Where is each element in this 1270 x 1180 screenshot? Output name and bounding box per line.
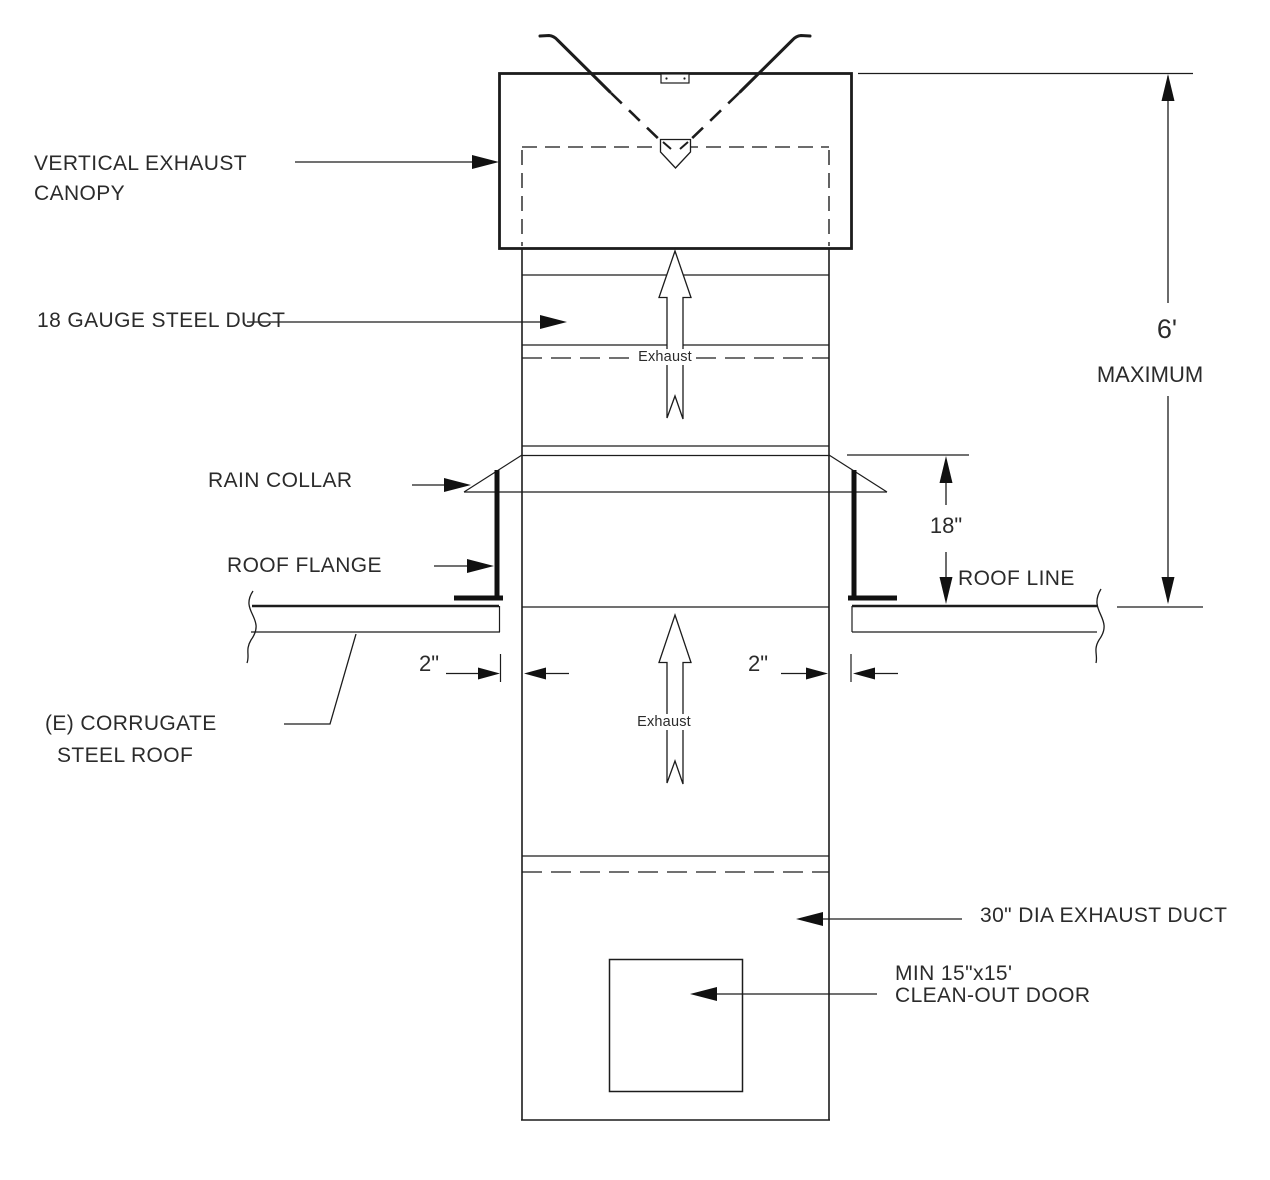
label-roof-line: ROOF LINE <box>958 567 1075 590</box>
exhaust-flow-arrow-lower <box>659 615 691 784</box>
flow-text-upper: Exhaust <box>635 349 695 365</box>
dimension-max-height <box>858 74 1203 608</box>
leader-canopy <box>295 155 499 169</box>
roof-break-left <box>247 591 256 663</box>
cleanout-door-outline <box>610 960 743 1092</box>
dim-text-clearance-left: 2" <box>419 651 439 677</box>
dim-text-max-height: 6' <box>1157 314 1177 345</box>
roof-left <box>247 591 500 663</box>
exhaust-flow-arrow-upper <box>659 251 691 419</box>
label-steel-duct: 18 GAUGE STEEL DUCT <box>37 309 285 332</box>
dim-text-clearance-right: 2" <box>748 651 768 677</box>
label-roof-flange: ROOF FLANGE <box>227 554 382 577</box>
dimension-clearance-left <box>446 654 569 682</box>
label-corrugate-line1: (E) CORRUGATE <box>45 712 217 735</box>
label-exhaust-duct: 30" DIA EXHAUST DUCT <box>980 904 1227 927</box>
leader-corrugate-roof <box>284 634 356 724</box>
label-cleanout-line1: MIN 15"x15' <box>895 962 1012 985</box>
canopy-mount-plate <box>661 74 689 83</box>
leader-exhaust-duct <box>796 912 962 926</box>
dim-text-maximum: MAXIMUM <box>1097 362 1203 388</box>
dim-text-collar-height: 18" <box>930 513 962 539</box>
flow-text-lower: Exhaust <box>634 714 694 730</box>
label-canopy-line1: VERTICAL EXHAUST <box>34 152 247 175</box>
leader-roof-flange <box>434 559 494 573</box>
roof-flange-right <box>848 470 897 598</box>
rain-collar-outline <box>464 455 887 492</box>
roof-break-right <box>1096 589 1104 663</box>
leader-steel-duct <box>247 315 567 329</box>
label-rain-collar: RAIN COLLAR <box>208 469 352 492</box>
exhaust-duct-detail-drawing: VERTICAL EXHAUST CANOPY 18 GAUGE STEEL D… <box>0 0 1270 1180</box>
label-cleanout-line2: CLEAN-OUT DOOR <box>895 984 1090 1007</box>
leader-rain-collar <box>412 478 471 492</box>
roof-flange-left <box>454 470 503 598</box>
label-corrugate-line2: STEEL ROOF <box>57 744 193 767</box>
label-canopy-line2: CANOPY <box>34 182 125 205</box>
dimension-clearance-right <box>781 654 898 682</box>
